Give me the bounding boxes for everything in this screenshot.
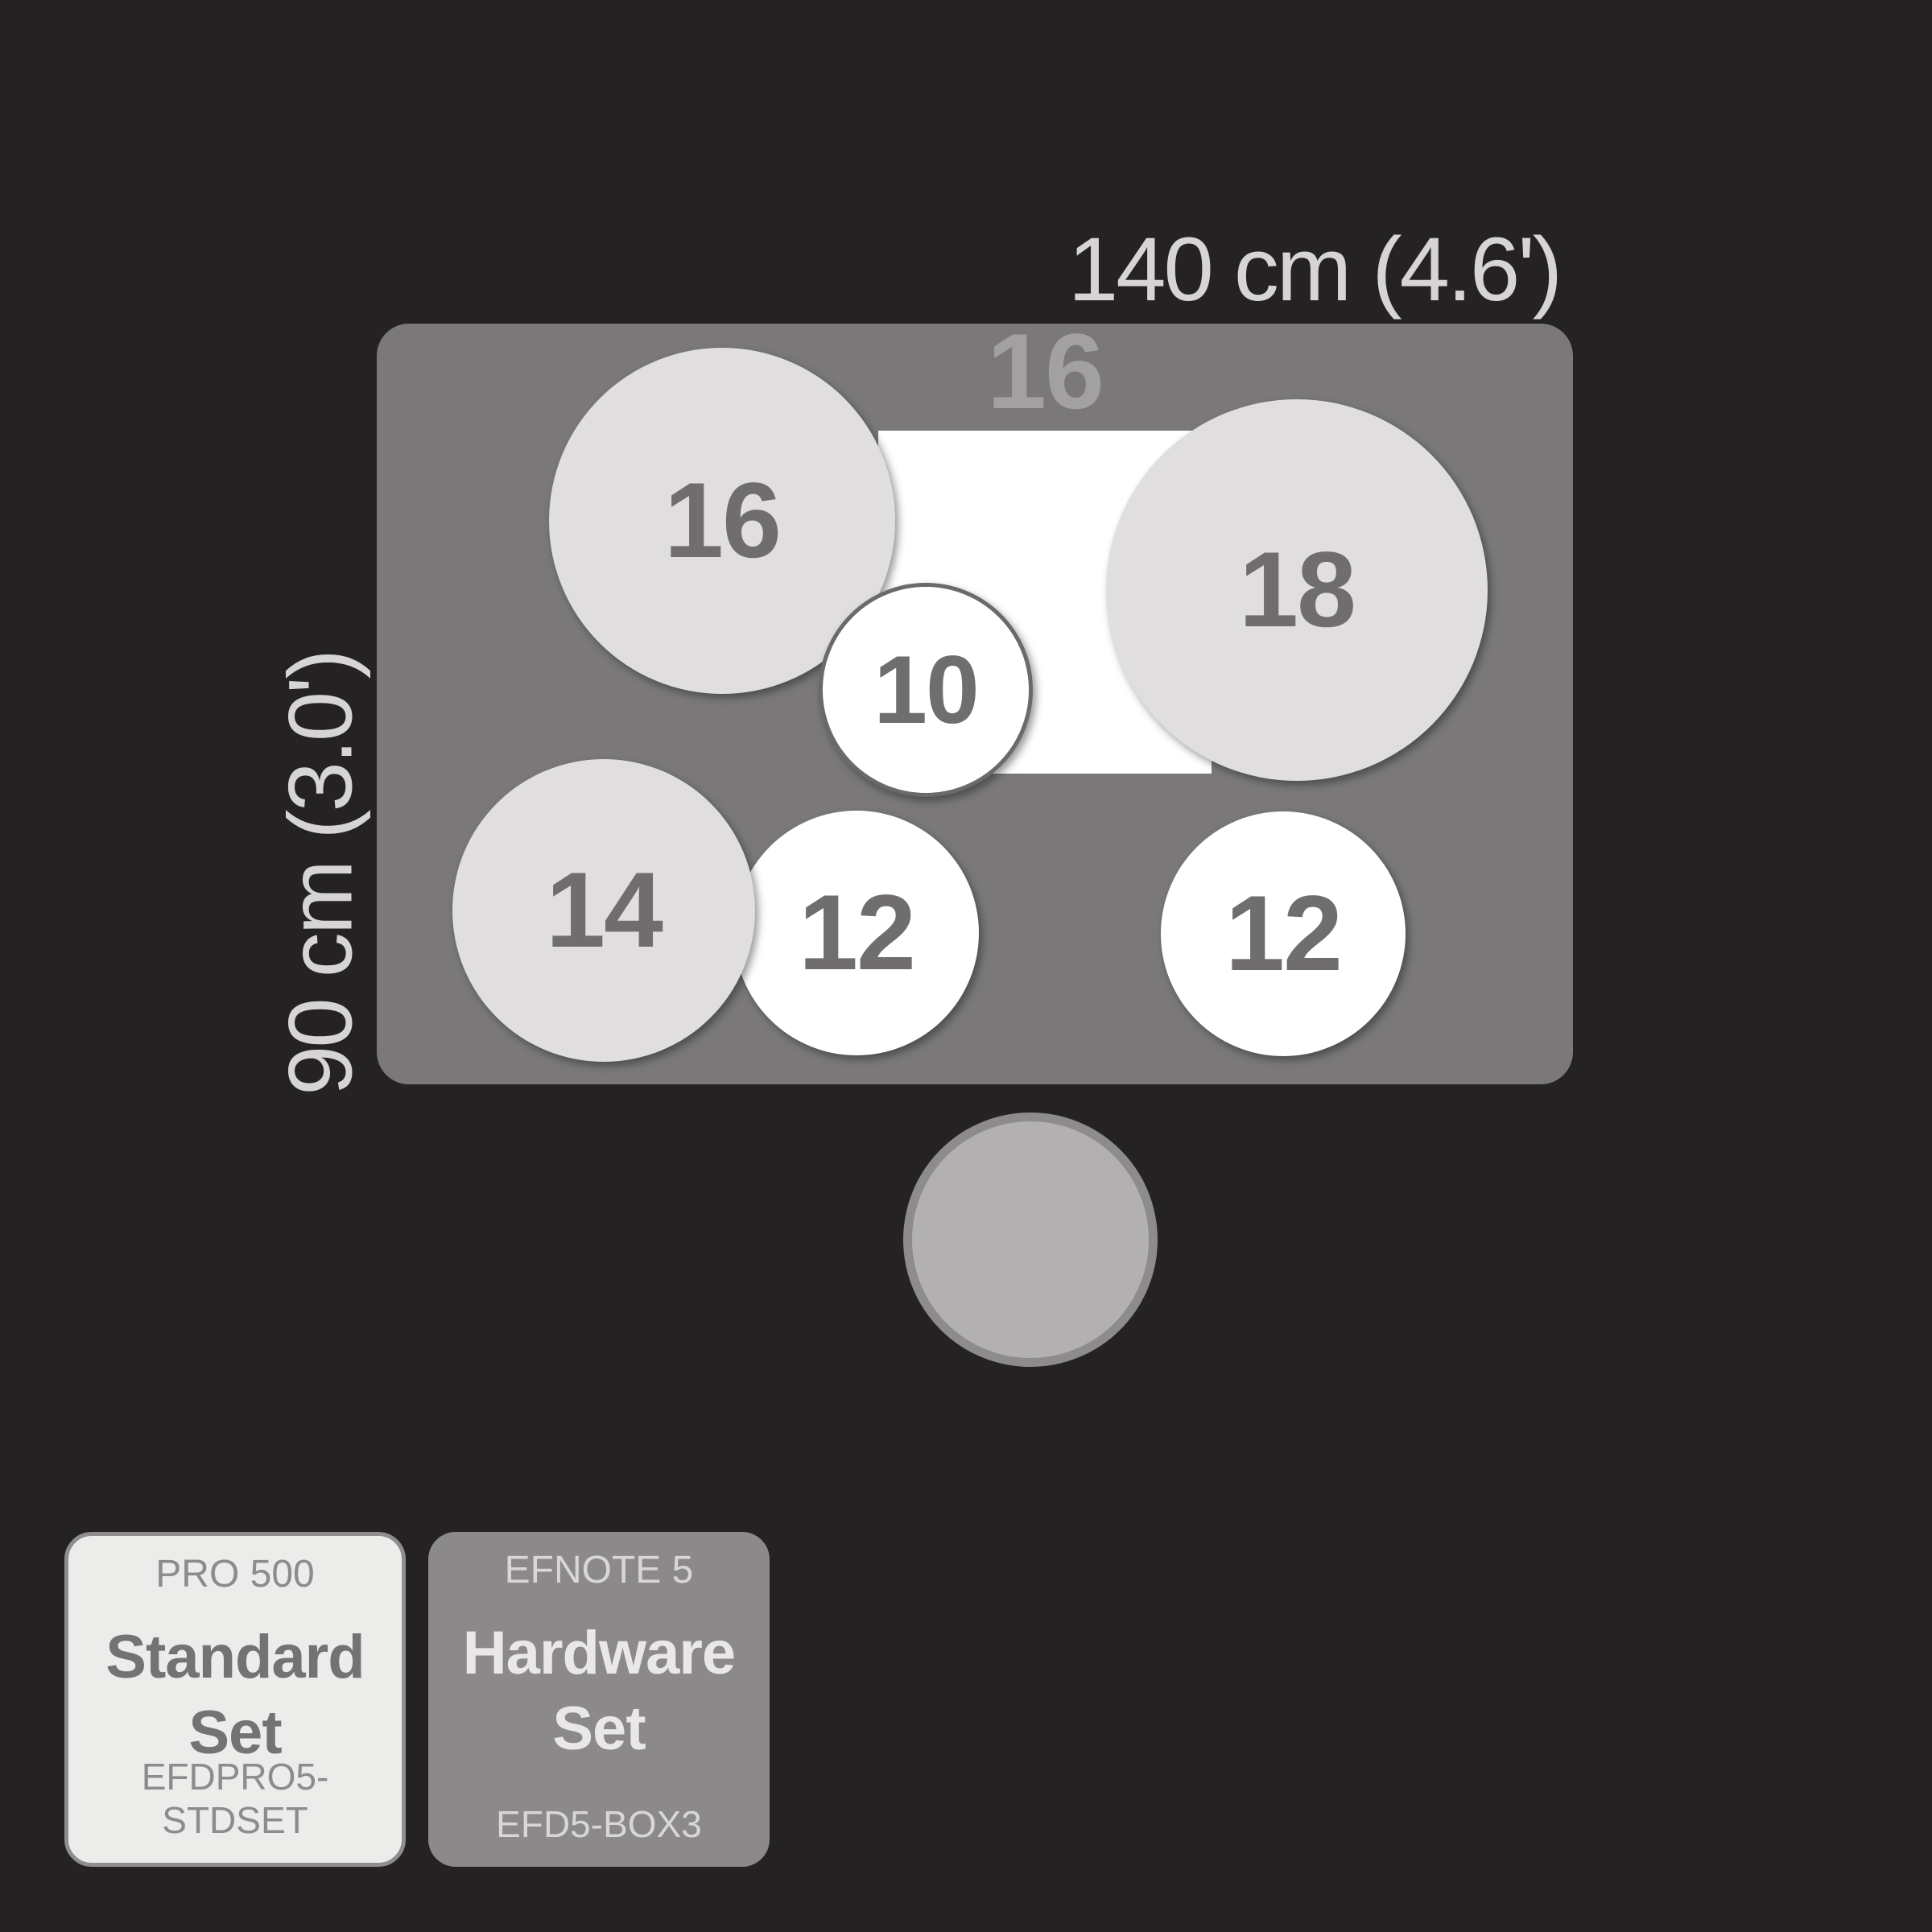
pad-size-label: 18 bbox=[1239, 529, 1355, 651]
pad-size-label: 10 bbox=[873, 634, 977, 745]
rug-depth-dimension-label: 90 cm (3.0') bbox=[269, 651, 373, 1096]
drum-set-footprint-diagram: 140 cm (4.6') 90 cm (3.0') 16 16 10 18 1… bbox=[0, 0, 1932, 1932]
kick-size-label: 16 bbox=[878, 319, 1212, 426]
pad-size-label: 16 bbox=[664, 460, 780, 582]
pad-tom-12-left: 12 bbox=[734, 811, 979, 1055]
pad-tom-10: 10 bbox=[819, 583, 1033, 797]
card-title: Standard Set bbox=[68, 1620, 402, 1771]
pad-size-label: 14 bbox=[546, 849, 662, 972]
rug-width-dimension-label: 140 cm (4.6') bbox=[1068, 217, 1560, 321]
pad-tom-12-right: 12 bbox=[1161, 811, 1406, 1056]
card-title-line: Set bbox=[552, 1695, 645, 1763]
pad-size-label: 12 bbox=[1225, 873, 1341, 995]
drum-throne-circle bbox=[903, 1113, 1158, 1367]
card-sku-label: EFDPRO5-STDSET bbox=[68, 1755, 402, 1842]
card-title-line: Standard bbox=[105, 1623, 364, 1691]
card-hardware-set: EFNOTE 5 Hardware Set EFD5-BOX3 bbox=[428, 1532, 770, 1867]
card-sku-label: EFD5-BOX3 bbox=[428, 1802, 770, 1846]
card-series-label: PRO 500 bbox=[68, 1552, 402, 1596]
card-title: Hardware Set bbox=[428, 1616, 770, 1767]
pad-floor-tom-14: 14 bbox=[452, 759, 755, 1062]
card-standard-set: PRO 500 Standard Set EFDPRO5-STDSET bbox=[64, 1532, 406, 1867]
card-series-label: EFNOTE 5 bbox=[428, 1548, 770, 1592]
card-title-line: Hardware bbox=[463, 1619, 735, 1687]
pad-crash-18: 18 bbox=[1106, 399, 1488, 781]
pad-size-label: 12 bbox=[799, 872, 914, 994]
